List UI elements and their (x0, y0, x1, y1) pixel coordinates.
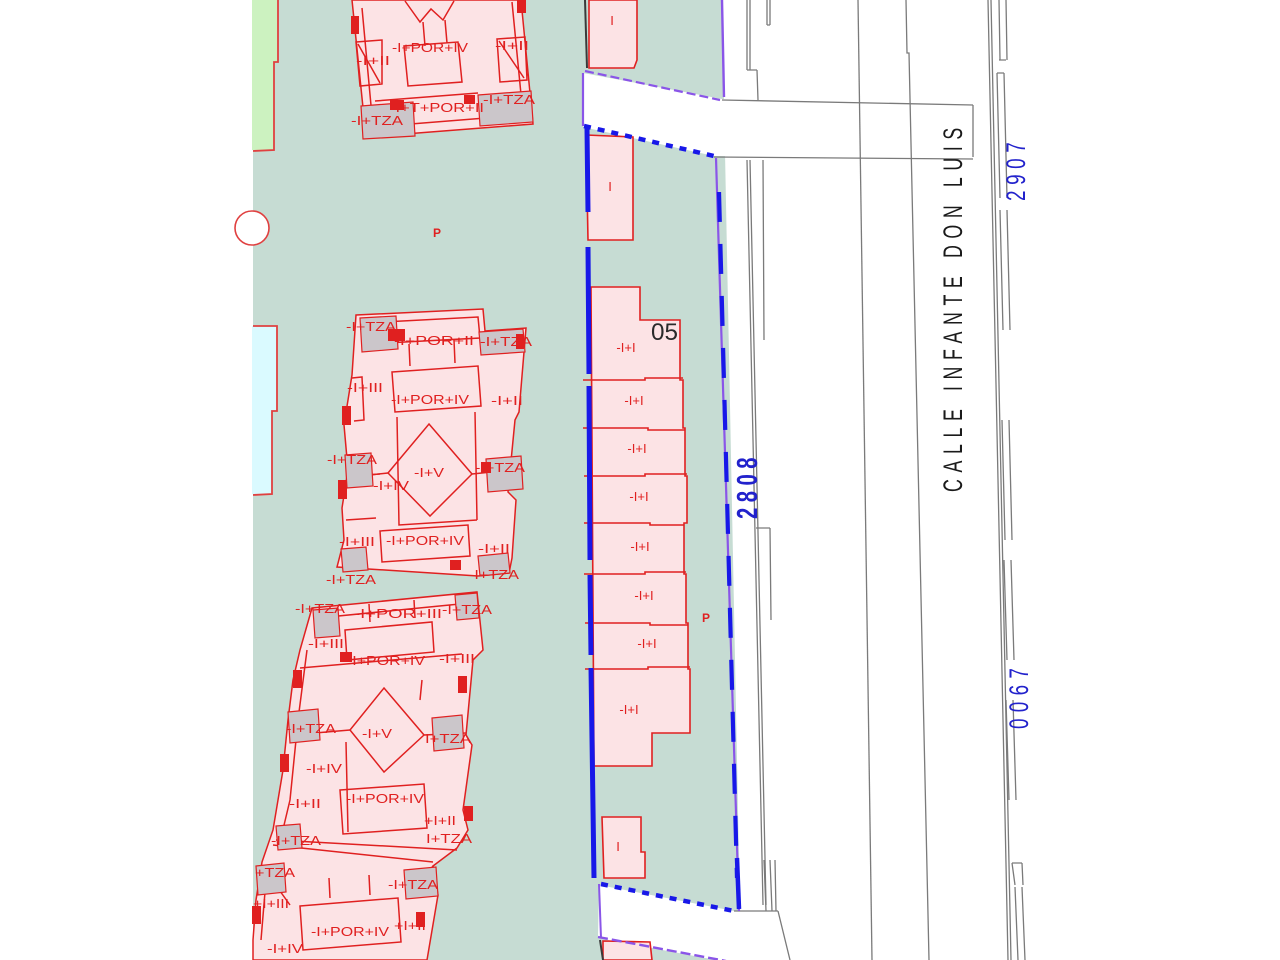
svg-text:-I+IV: -I+IV (267, 941, 303, 956)
svg-text:+I+II: +I+II (394, 918, 426, 933)
svg-text:-I+POR+III: -I+POR+III (354, 606, 442, 621)
svg-text:-I+II: -I+II (478, 541, 510, 556)
svg-text:-I+TZA: -I+TZA (351, 113, 403, 128)
svg-text:I+TZA: I+TZA (426, 831, 472, 846)
svg-text:I+TZA: I+TZA (425, 731, 471, 746)
svg-text:-I+I: -I+I (619, 702, 638, 717)
svg-text:-I+POR+IV: -I+POR+IV (391, 392, 469, 407)
svg-text:-I+III: -I+III (347, 380, 383, 395)
svg-text:-I+II: -I+II (289, 796, 321, 811)
svg-text:-I+POR+IV: -I+POR+IV (311, 924, 389, 939)
svg-text:-I+TZA: -I+TZA (475, 460, 525, 475)
svg-text:-I+TZA: -I+TZA (483, 92, 535, 107)
svg-text:I: I (610, 13, 614, 28)
svg-text:+TZA: +TZA (255, 865, 295, 880)
svg-text:-I+TZA: -I+TZA (295, 601, 345, 616)
svg-text:I: I (608, 179, 612, 194)
svg-text:-I+II: -I+II (356, 53, 390, 68)
svg-text:-I+III: -I+III (308, 636, 344, 651)
svg-text:-I+I: -I+I (637, 636, 656, 651)
svg-text:+I+II: +I+II (424, 813, 456, 828)
svg-text:-I+POR+IV: -I+POR+IV (346, 791, 424, 806)
svg-text:-I+III: -I+III (439, 651, 475, 666)
svg-text:-I+IV: -I+IV (373, 478, 409, 493)
svg-text:-I+POR+IV: -I+POR+IV (386, 533, 464, 548)
svg-text:-I+III: -I+III (339, 534, 375, 549)
svg-text:-I+I: -I+I (634, 588, 653, 603)
svg-text:-I+POR+IV: -I+POR+IV (347, 653, 425, 668)
svg-text:-I+TZA: -I+TZA (480, 334, 532, 349)
svg-text:-I+POR+II: -I+POR+II (394, 333, 474, 348)
svg-text:-I+V: -I+V (414, 465, 444, 480)
svg-text:-I+TZA: -I+TZA (327, 452, 377, 467)
svg-text:I: I (616, 839, 620, 854)
svg-text:-I+T+POR+II: -I+T+POR+II (390, 100, 484, 115)
svg-text:-I+I: -I+I (627, 441, 646, 456)
svg-text:-I+TZA: -I+TZA (271, 833, 321, 848)
svg-text:-I+TZA: -I+TZA (326, 572, 376, 587)
svg-text:-I+II: -I+II (491, 393, 523, 408)
svg-text:+I+III: +I+III (253, 896, 289, 911)
svg-text:-I+TZA: -I+TZA (388, 877, 438, 892)
svg-text:05: 05 (651, 319, 678, 346)
svg-text:-I+TZA: -I+TZA (286, 721, 336, 736)
svg-text:-I+TZA: -I+TZA (469, 567, 519, 582)
svg-text:-I+I: -I+I (624, 393, 643, 408)
svg-text:-I+TZA: -I+TZA (442, 602, 492, 617)
svg-text:P: P (702, 611, 710, 625)
svg-text:-I+IV: -I+IV (306, 761, 342, 776)
svg-text:P: P (433, 226, 441, 240)
svg-text:-I+II: -I+II (495, 38, 529, 53)
svg-text:-I+I: -I+I (616, 340, 635, 355)
svg-text:-I+TZA: -I+TZA (346, 319, 396, 334)
svg-text:-I+POR+IV: -I+POR+IV (392, 40, 468, 55)
svg-text:-I+I: -I+I (629, 489, 648, 504)
svg-text:-I+I: -I+I (630, 539, 649, 554)
svg-text:-I+V: -I+V (362, 726, 392, 741)
